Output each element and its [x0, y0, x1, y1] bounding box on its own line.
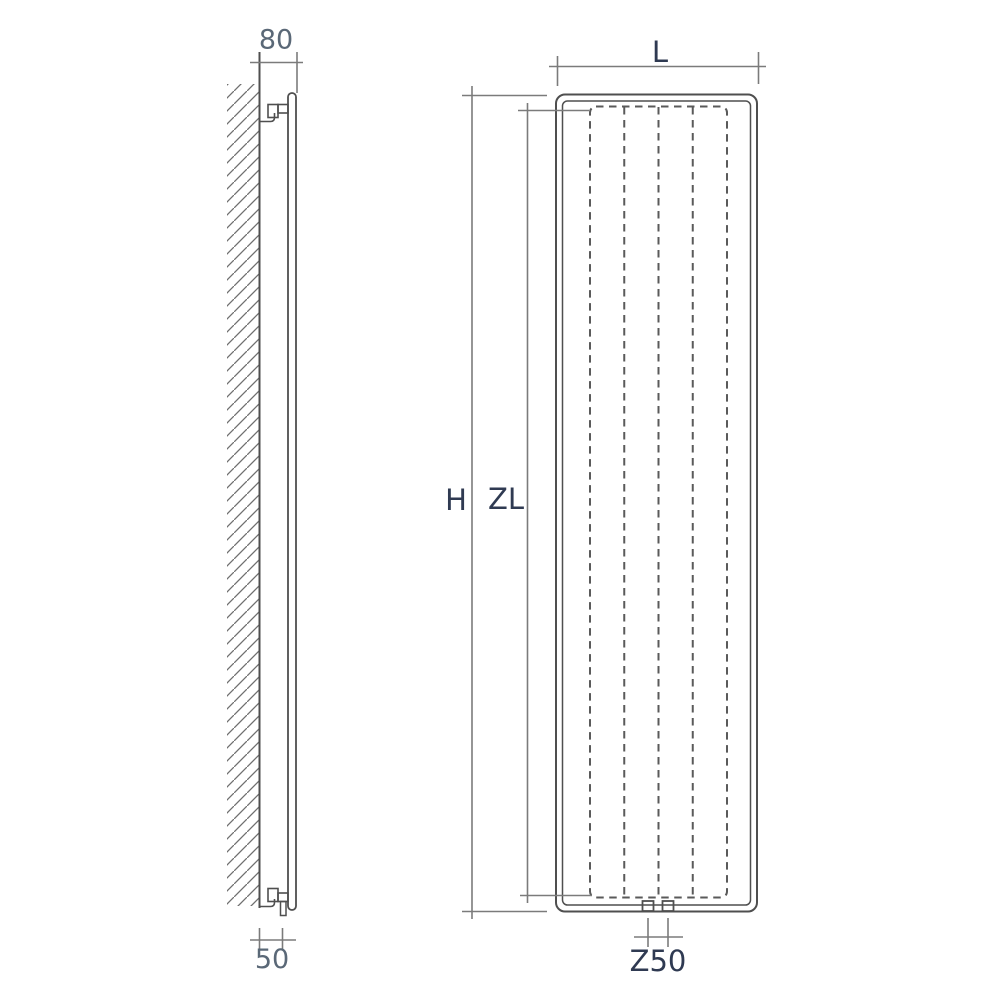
bracket-arm [278, 105, 288, 114]
width-dimension-label: L [652, 35, 668, 69]
height-dimension-label: H [445, 483, 467, 517]
depth-dimension-label: 80 [259, 25, 293, 56]
connection-stub-right [663, 901, 674, 911]
bracket-arm [278, 893, 288, 902]
inner-height-dimension-label: ZL [488, 482, 524, 516]
connection-stub-left [643, 901, 654, 911]
front-view: L H ZL Z50 [445, 35, 766, 978]
dimension-width-L: L [549, 35, 766, 86]
radiator-dimension-diagram: 80 50 L [0, 0, 1000, 1000]
dimension-pipe-offset-50: 50 [250, 928, 296, 975]
radiator-technical-drawing: 80 50 L [0, 0, 1000, 1000]
connection-spacing-dimension-label: Z50 [630, 944, 687, 978]
dimension-depth-80: 80 [250, 25, 303, 94]
bracket-clamp [268, 889, 278, 902]
bracket-clamp [268, 105, 278, 118]
pipe-offset-dimension-label: 50 [255, 944, 289, 975]
dimension-connection-Z50: Z50 [630, 918, 687, 978]
bracket-hook [260, 899, 275, 907]
side-view: 80 50 [227, 25, 303, 976]
bottom-pipe-stub [281, 902, 287, 916]
top-mounting-bracket [260, 105, 289, 122]
bottom-mounting-bracket [260, 889, 289, 916]
radiator-side-panel [288, 93, 296, 910]
wall-hatching [227, 84, 259, 906]
dimension-inner-height-ZL: ZL [488, 103, 592, 903]
